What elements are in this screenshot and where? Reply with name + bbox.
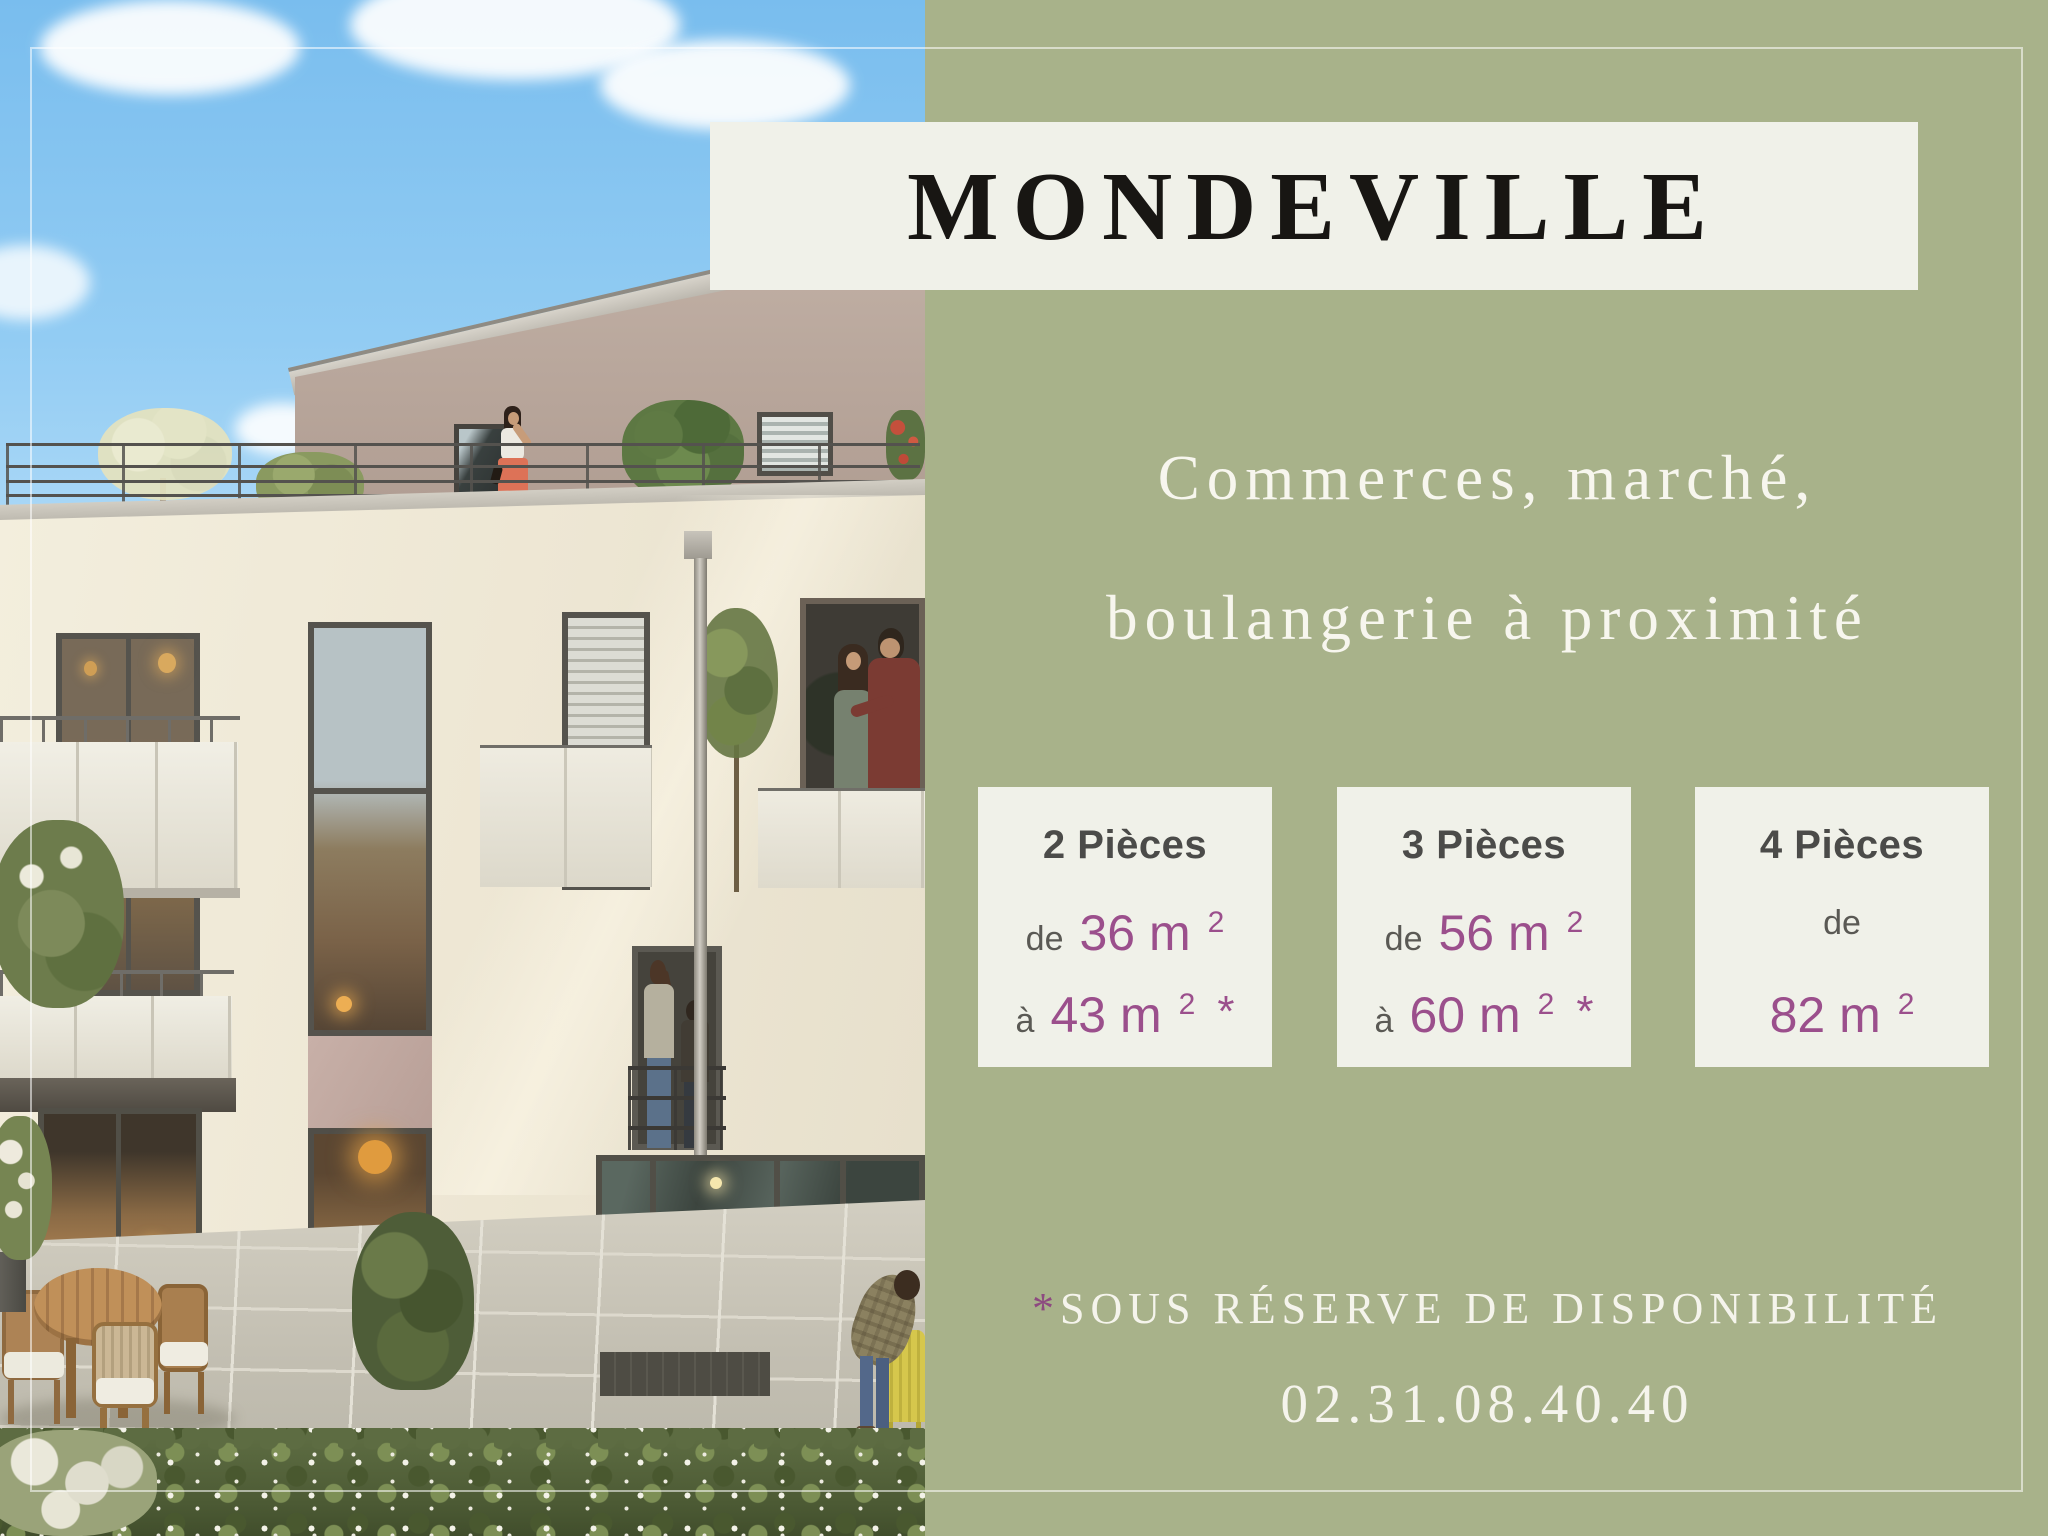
range-prefix: de xyxy=(1385,920,1423,959)
card-row: à 43 m 2 * xyxy=(1016,986,1235,1050)
balcony-frosted-panels xyxy=(480,745,652,887)
gardener-head xyxy=(894,1270,920,1300)
pendant-lamp xyxy=(158,653,176,673)
card-4-pieces: 4 Pièces de 82 m 2 xyxy=(1695,787,1989,1067)
area-exponent: 2 xyxy=(1179,988,1196,1022)
cloud xyxy=(600,40,850,130)
range-prefix: à xyxy=(1016,1002,1035,1041)
card-row: de 56 m 2 xyxy=(1385,904,1584,968)
chair-leg xyxy=(164,1372,170,1414)
window-transom xyxy=(314,788,426,794)
plant-pot xyxy=(0,1252,26,1312)
flyer: MONDEVILLE Commerces, marché, boulangeri… xyxy=(0,0,2048,1536)
area-asterisk: * xyxy=(1576,987,1593,1037)
window-bedroom-tall xyxy=(308,622,432,1036)
note-asterisk: * xyxy=(1032,1284,1060,1333)
card-row: de xyxy=(1823,904,1861,968)
area-value: 60 m xyxy=(1409,986,1520,1044)
pendant-lamp xyxy=(84,661,97,676)
cloud xyxy=(0,245,90,320)
woman-face xyxy=(846,652,861,670)
couple-on-balcony xyxy=(820,628,925,794)
rattan-pendant-lamp xyxy=(358,1140,392,1174)
area-exponent: 2 xyxy=(1538,988,1555,1022)
card-3-pieces: 3 Pièces de 56 m 2 à 60 m 2 * xyxy=(1337,787,1631,1067)
area-exponent: 2 xyxy=(1567,906,1584,940)
french-balcony-rail xyxy=(628,1066,726,1150)
blinds xyxy=(568,618,644,756)
boxwood-shrub xyxy=(352,1212,474,1390)
subtitle-line: Commerces, marché, xyxy=(935,438,2040,518)
card-row: 82 m 2 xyxy=(1770,986,1915,1050)
drainpipe-collector xyxy=(684,531,712,559)
area-exponent: 2 xyxy=(1898,988,1915,1022)
garden-chair xyxy=(158,1284,214,1416)
area-value: 43 m xyxy=(1050,986,1161,1044)
card-title: 2 Pièces xyxy=(1043,823,1207,868)
card-title: 3 Pièces xyxy=(1402,823,1566,868)
gardener-leg xyxy=(876,1358,889,1430)
area-asterisk: * xyxy=(1217,987,1234,1037)
table-leg xyxy=(66,1338,76,1418)
man-top xyxy=(868,658,920,794)
range-prefix: de xyxy=(1026,920,1064,959)
subtitle: Commerces, marché, boulangerie à proximi… xyxy=(935,438,2040,658)
balcony-frosted-panels xyxy=(0,996,232,1078)
ceiling-light xyxy=(710,1177,722,1189)
area-value: 56 m xyxy=(1438,904,1549,962)
white-flower-shrub xyxy=(0,1116,52,1260)
balcony-plant xyxy=(0,820,124,1008)
title-banner: MONDEVILLE xyxy=(710,122,1918,290)
card-2-pieces: 2 Pièces de 36 m 2 à 43 m 2 * xyxy=(978,787,1272,1067)
chair-cushion xyxy=(96,1378,154,1404)
chair-cushion xyxy=(160,1342,208,1366)
white-blossom-bush xyxy=(0,1430,157,1536)
figure-top xyxy=(644,984,674,1058)
gardener-leg xyxy=(860,1356,873,1430)
area-value: 36 m xyxy=(1079,904,1190,962)
chair-leg xyxy=(8,1380,14,1424)
phone-number: 02.31.08.40.40 xyxy=(935,1372,2040,1435)
spandrel-panel xyxy=(308,1036,432,1128)
range-prefix: de xyxy=(1823,904,1861,943)
card-title: 4 Pièces xyxy=(1760,823,1924,868)
card-row: de 36 m 2 xyxy=(1026,904,1225,968)
chair-leg xyxy=(198,1372,204,1414)
page-title: MONDEVILLE xyxy=(907,151,1721,262)
range-prefix: à xyxy=(1375,1002,1394,1041)
subtitle-line: boulangerie à proximité xyxy=(935,578,2040,658)
note-text: SOUS RÉSERVE DE DISPONIBILITÉ xyxy=(1060,1284,1943,1333)
balcony-underside xyxy=(0,1078,236,1112)
card-row: à 60 m 2 * xyxy=(1375,986,1594,1050)
area-exponent: 2 xyxy=(1208,906,1225,940)
area-value: 82 m xyxy=(1770,986,1881,1044)
man-face xyxy=(880,638,900,658)
doormat xyxy=(600,1352,770,1396)
balcony-frosted-panels xyxy=(758,788,925,888)
table-lamp xyxy=(336,996,352,1012)
availability-note: *SOUS RÉSERVE DE DISPONIBILITÉ xyxy=(935,1283,2040,1334)
cloud xyxy=(40,0,300,95)
gardener-figure xyxy=(852,1262,925,1448)
